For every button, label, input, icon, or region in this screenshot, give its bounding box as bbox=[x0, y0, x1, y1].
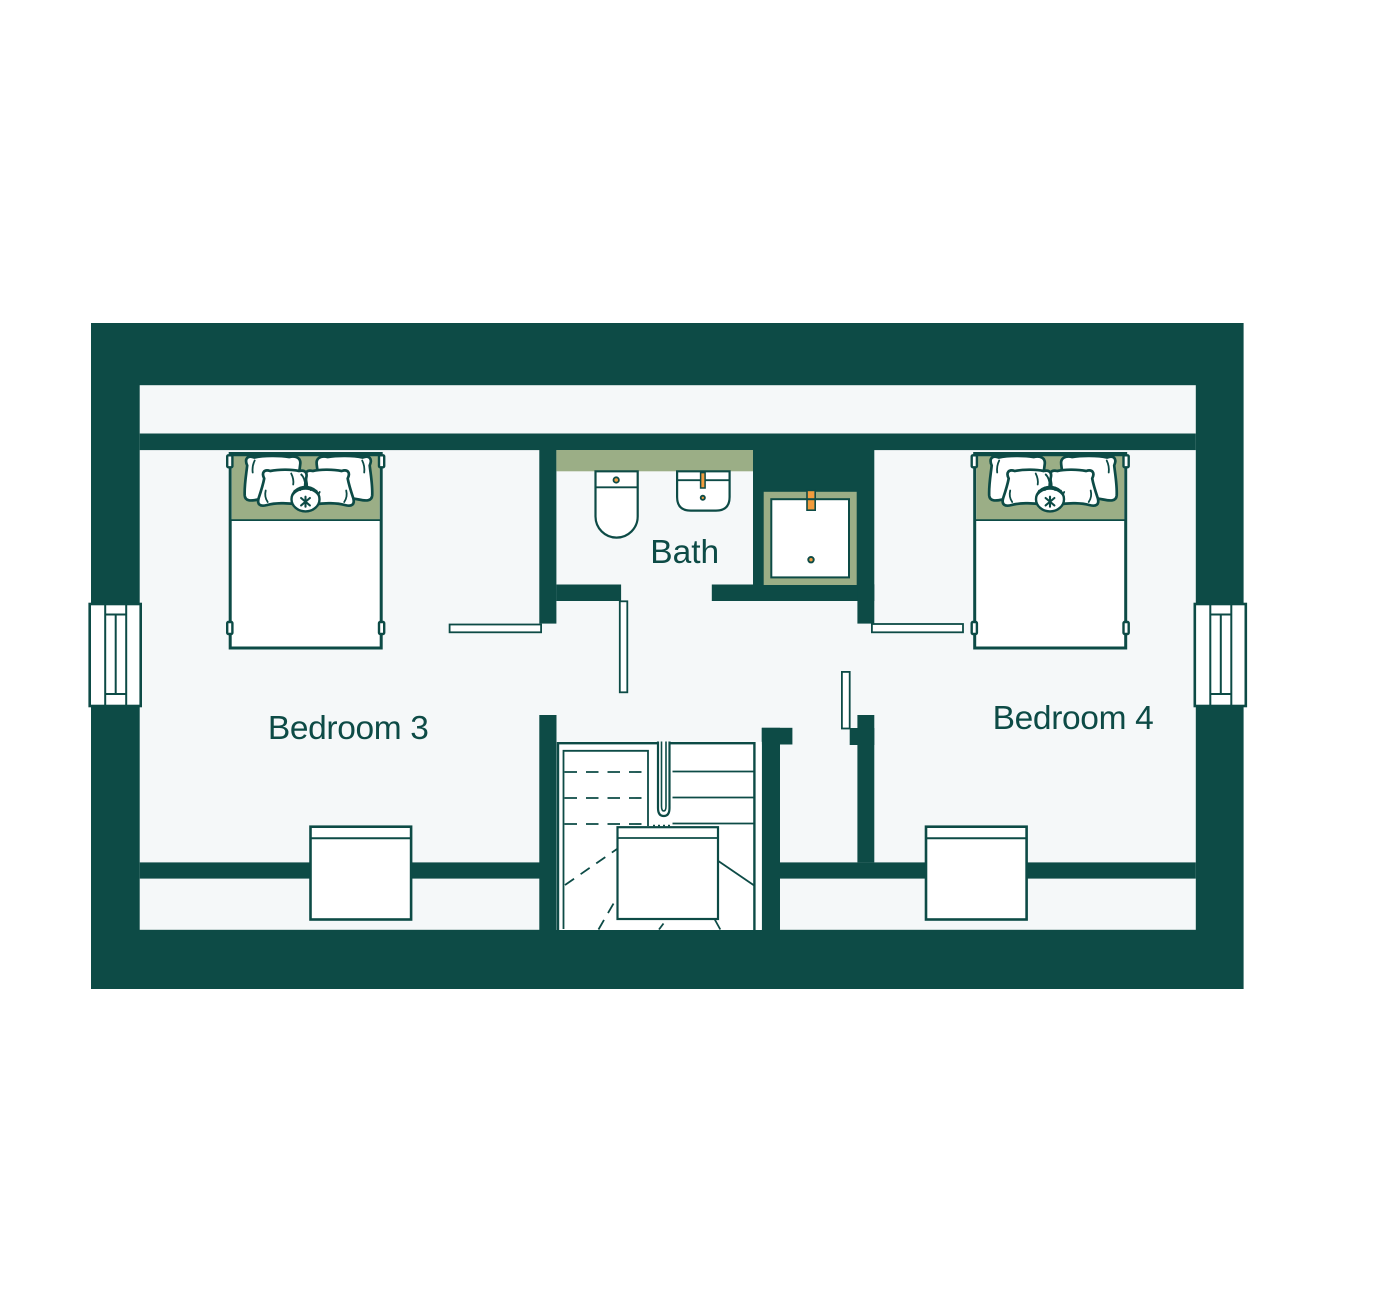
svg-text:Bedroom 3: Bedroom 3 bbox=[268, 710, 429, 747]
svg-text:Bedroom 4: Bedroom 4 bbox=[993, 700, 1154, 737]
svg-text:Bath: Bath bbox=[650, 534, 719, 571]
